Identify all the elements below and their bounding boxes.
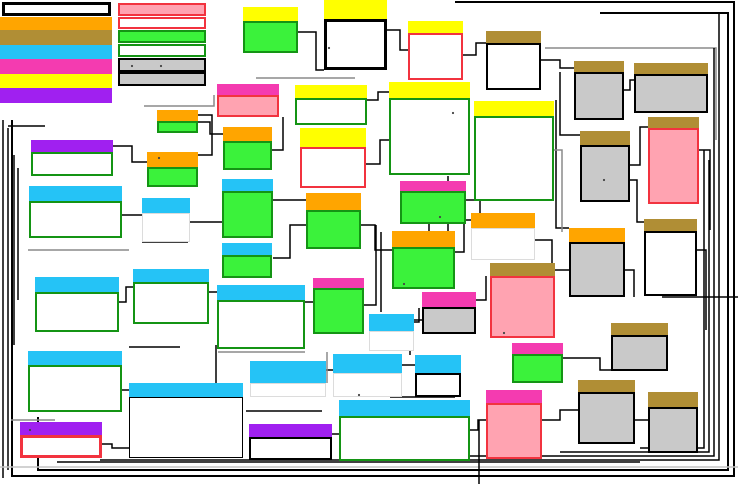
- text-dot: [158, 157, 160, 159]
- text-dot: [328, 47, 330, 49]
- text-dot: [29, 429, 31, 431]
- text-dot: [160, 65, 162, 67]
- diagram-canvas: [0, 0, 738, 484]
- text-dot: [131, 65, 133, 67]
- text-dot: [439, 216, 441, 218]
- text-dot: [403, 283, 405, 285]
- text-dot: [603, 179, 605, 181]
- text-dot: [503, 332, 505, 334]
- text-dots-layer: [0, 0, 738, 484]
- text-dot: [452, 112, 454, 114]
- text-dot: [358, 394, 360, 396]
